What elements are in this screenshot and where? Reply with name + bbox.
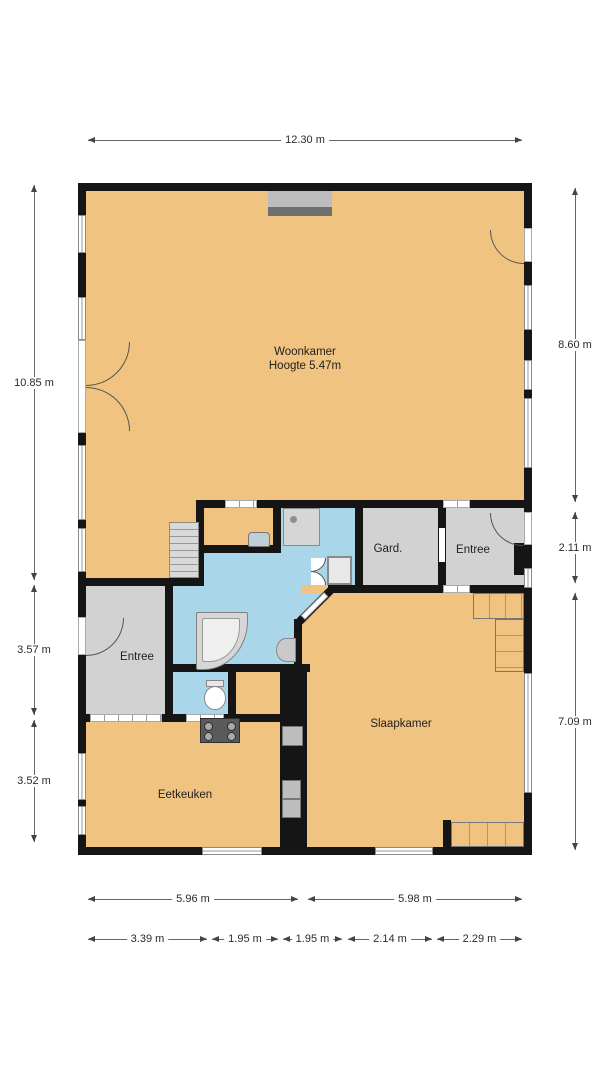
dimension-label: 5.98 m xyxy=(394,893,436,905)
dimension-bottom-1a: 5.96 m xyxy=(88,894,298,904)
wall xyxy=(514,543,524,575)
sink xyxy=(248,532,270,547)
fireplace xyxy=(268,191,332,207)
wall xyxy=(78,183,532,191)
toilet xyxy=(204,686,226,710)
dimension-bottom-2e: 2.29 m xyxy=(437,934,522,944)
window xyxy=(524,568,532,588)
window xyxy=(78,297,86,340)
wall xyxy=(443,820,451,847)
oven xyxy=(282,799,301,818)
dimension-label: 2.11 m xyxy=(555,542,596,554)
wall xyxy=(273,508,281,553)
fireplace-hearth xyxy=(268,207,332,216)
shower-head-icon xyxy=(290,516,297,523)
window xyxy=(78,753,86,800)
threshold xyxy=(443,500,470,508)
dimension-bottom-2b: 1.95 m xyxy=(212,934,278,944)
wall xyxy=(86,578,204,586)
dimension-label: 12.30 m xyxy=(281,134,329,146)
window xyxy=(78,445,86,520)
wall xyxy=(328,585,532,593)
dimension-label: 3.57 m xyxy=(13,644,55,656)
threshold xyxy=(225,500,257,508)
room-label-entree-right: Entree xyxy=(456,544,490,556)
oven xyxy=(282,780,301,799)
dimension-label: 1.95 m xyxy=(224,933,266,945)
window xyxy=(524,285,532,330)
dimension-label: 1.95 m xyxy=(292,933,334,945)
dimension-bottom-1b: 5.98 m xyxy=(308,894,522,904)
washbasin xyxy=(276,638,296,662)
door-opening xyxy=(524,512,532,545)
window xyxy=(524,673,532,793)
kitchen-counter-column xyxy=(280,672,307,847)
window xyxy=(524,360,532,390)
window xyxy=(78,528,86,572)
dimension-right-3: 7.09 m xyxy=(570,593,580,850)
wall xyxy=(165,578,173,722)
threshold xyxy=(443,585,470,593)
door-opening xyxy=(78,340,86,433)
window xyxy=(202,847,262,855)
dimension-top: 12.30 m xyxy=(88,135,522,145)
stove xyxy=(200,718,240,743)
kitchen-sink xyxy=(282,726,303,746)
wardrobe xyxy=(473,593,524,619)
dimension-right-1: 8.60 m xyxy=(570,188,580,502)
threshold xyxy=(90,714,162,722)
shower xyxy=(283,508,320,546)
dimension-label: 7.09 m xyxy=(554,716,596,728)
window xyxy=(524,398,532,468)
window xyxy=(78,806,86,835)
door-opening xyxy=(524,228,532,262)
dimension-right-2: 2.11 m xyxy=(570,512,580,583)
closet xyxy=(327,556,352,585)
dimension-left-3: 3.52 m xyxy=(29,720,39,842)
dimension-bottom-2c: 1.95 m xyxy=(283,934,342,944)
floorplan: 12.30 m 10.85 m 3.57 m 3.52 m 8.60 m 2.1… xyxy=(0,0,608,1080)
room-label-gard: Gard. xyxy=(374,543,403,555)
room-label-slaapkamer: Slaapkamer xyxy=(370,718,431,730)
dimension-label: 3.52 m xyxy=(13,775,55,787)
room-label-eetkeuken: Eetkeuken xyxy=(158,789,212,801)
window xyxy=(375,847,433,855)
door-opening xyxy=(78,617,86,655)
room-label-woonkamer: Woonkamer xyxy=(274,346,336,358)
dimension-bottom-2a: 3.39 m xyxy=(88,934,207,944)
dimension-label: 5.96 m xyxy=(172,893,214,905)
wall xyxy=(228,664,236,722)
wall xyxy=(355,508,363,593)
wall xyxy=(173,664,310,672)
dimension-label: 2.14 m xyxy=(369,933,411,945)
stairs xyxy=(169,522,199,578)
dimension-bottom-2d: 2.14 m xyxy=(348,934,432,944)
dimension-label: 10.85 m xyxy=(10,377,58,389)
dimension-left-2: 3.57 m xyxy=(29,585,39,715)
room-label-entree-left: Entree xyxy=(120,651,154,663)
door-opening xyxy=(439,528,445,562)
dimension-label: 3.39 m xyxy=(127,933,169,945)
wall xyxy=(78,847,532,855)
room-label-hoogte: Hoogte 5.47m xyxy=(269,360,341,372)
window xyxy=(78,215,86,253)
wardrobe xyxy=(495,619,524,672)
bench xyxy=(451,822,524,847)
dimension-left-1: 10.85 m xyxy=(29,185,39,580)
dimension-label: 8.60 m xyxy=(554,339,596,351)
dimension-label: 2.29 m xyxy=(459,933,501,945)
